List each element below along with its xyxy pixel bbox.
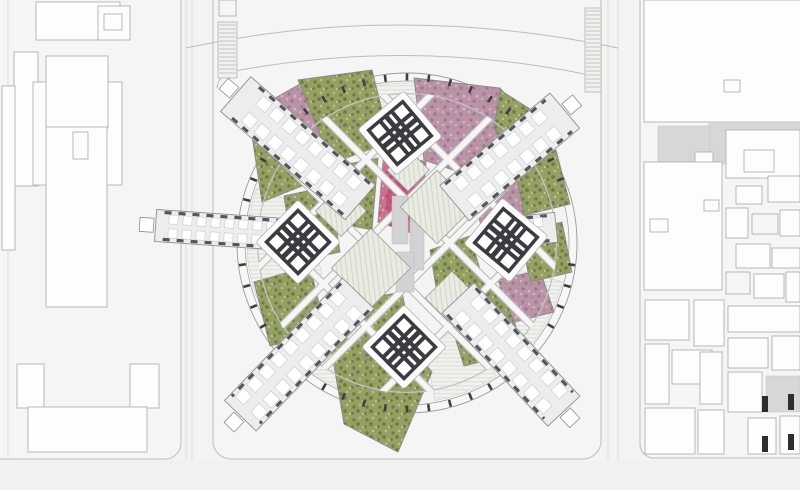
building-footprint [786, 272, 800, 302]
site-plan-svg [0, 0, 800, 490]
building-footprint [780, 210, 800, 236]
facade-tick [406, 74, 409, 81]
building-footprint [645, 408, 695, 454]
building-footprint [726, 130, 800, 178]
building-footprint [772, 248, 800, 268]
building-footprint [762, 396, 768, 412]
facade-tick [406, 406, 409, 413]
building-footprint [728, 338, 768, 368]
wing-tip-cap [139, 217, 154, 232]
building-footprint [17, 364, 44, 408]
building-footprint [46, 127, 107, 307]
building-footprint [768, 176, 800, 202]
building-footprint [645, 344, 669, 404]
building-footprint [754, 274, 784, 298]
building-footprint [762, 436, 768, 452]
building-footprint [2, 86, 15, 250]
housing-module [168, 229, 178, 239]
building-footprint [46, 56, 108, 128]
housing-module [210, 232, 220, 242]
building-footprint [736, 186, 762, 204]
housing-module [182, 230, 192, 240]
facade-tick-mark [406, 74, 409, 81]
foreground-street [0, 461, 800, 490]
ramp-hatch [218, 22, 237, 78]
housing-module [183, 216, 193, 226]
housing-module [253, 221, 263, 231]
building-footprint [694, 300, 724, 346]
building-footprint [700, 352, 722, 404]
housing-module [196, 231, 206, 241]
building-footprint [644, 162, 722, 290]
building-footprint [645, 300, 689, 340]
housing-module [169, 215, 179, 225]
building-footprint [726, 208, 748, 238]
building-footprint [98, 6, 130, 40]
housing-module [197, 217, 207, 227]
site-plan-canvas [0, 0, 800, 490]
building-footprint [736, 244, 770, 268]
ramp-hatch [585, 8, 601, 92]
housing-module [239, 220, 249, 230]
building-footprint [788, 434, 794, 450]
building-footprint [772, 336, 800, 370]
building-footprint [644, 0, 800, 122]
housing-module [225, 219, 235, 229]
building-footprint [28, 407, 147, 452]
building-footprint [728, 306, 800, 332]
building-footprint [728, 372, 762, 412]
building-footprint [788, 394, 794, 410]
facade-tick-mark [406, 406, 409, 413]
building-footprint [698, 410, 724, 454]
building-footprint [130, 364, 159, 408]
building-footprint [766, 376, 800, 412]
housing-module [211, 218, 221, 228]
housing-module [224, 233, 234, 243]
housing-module [238, 234, 248, 244]
